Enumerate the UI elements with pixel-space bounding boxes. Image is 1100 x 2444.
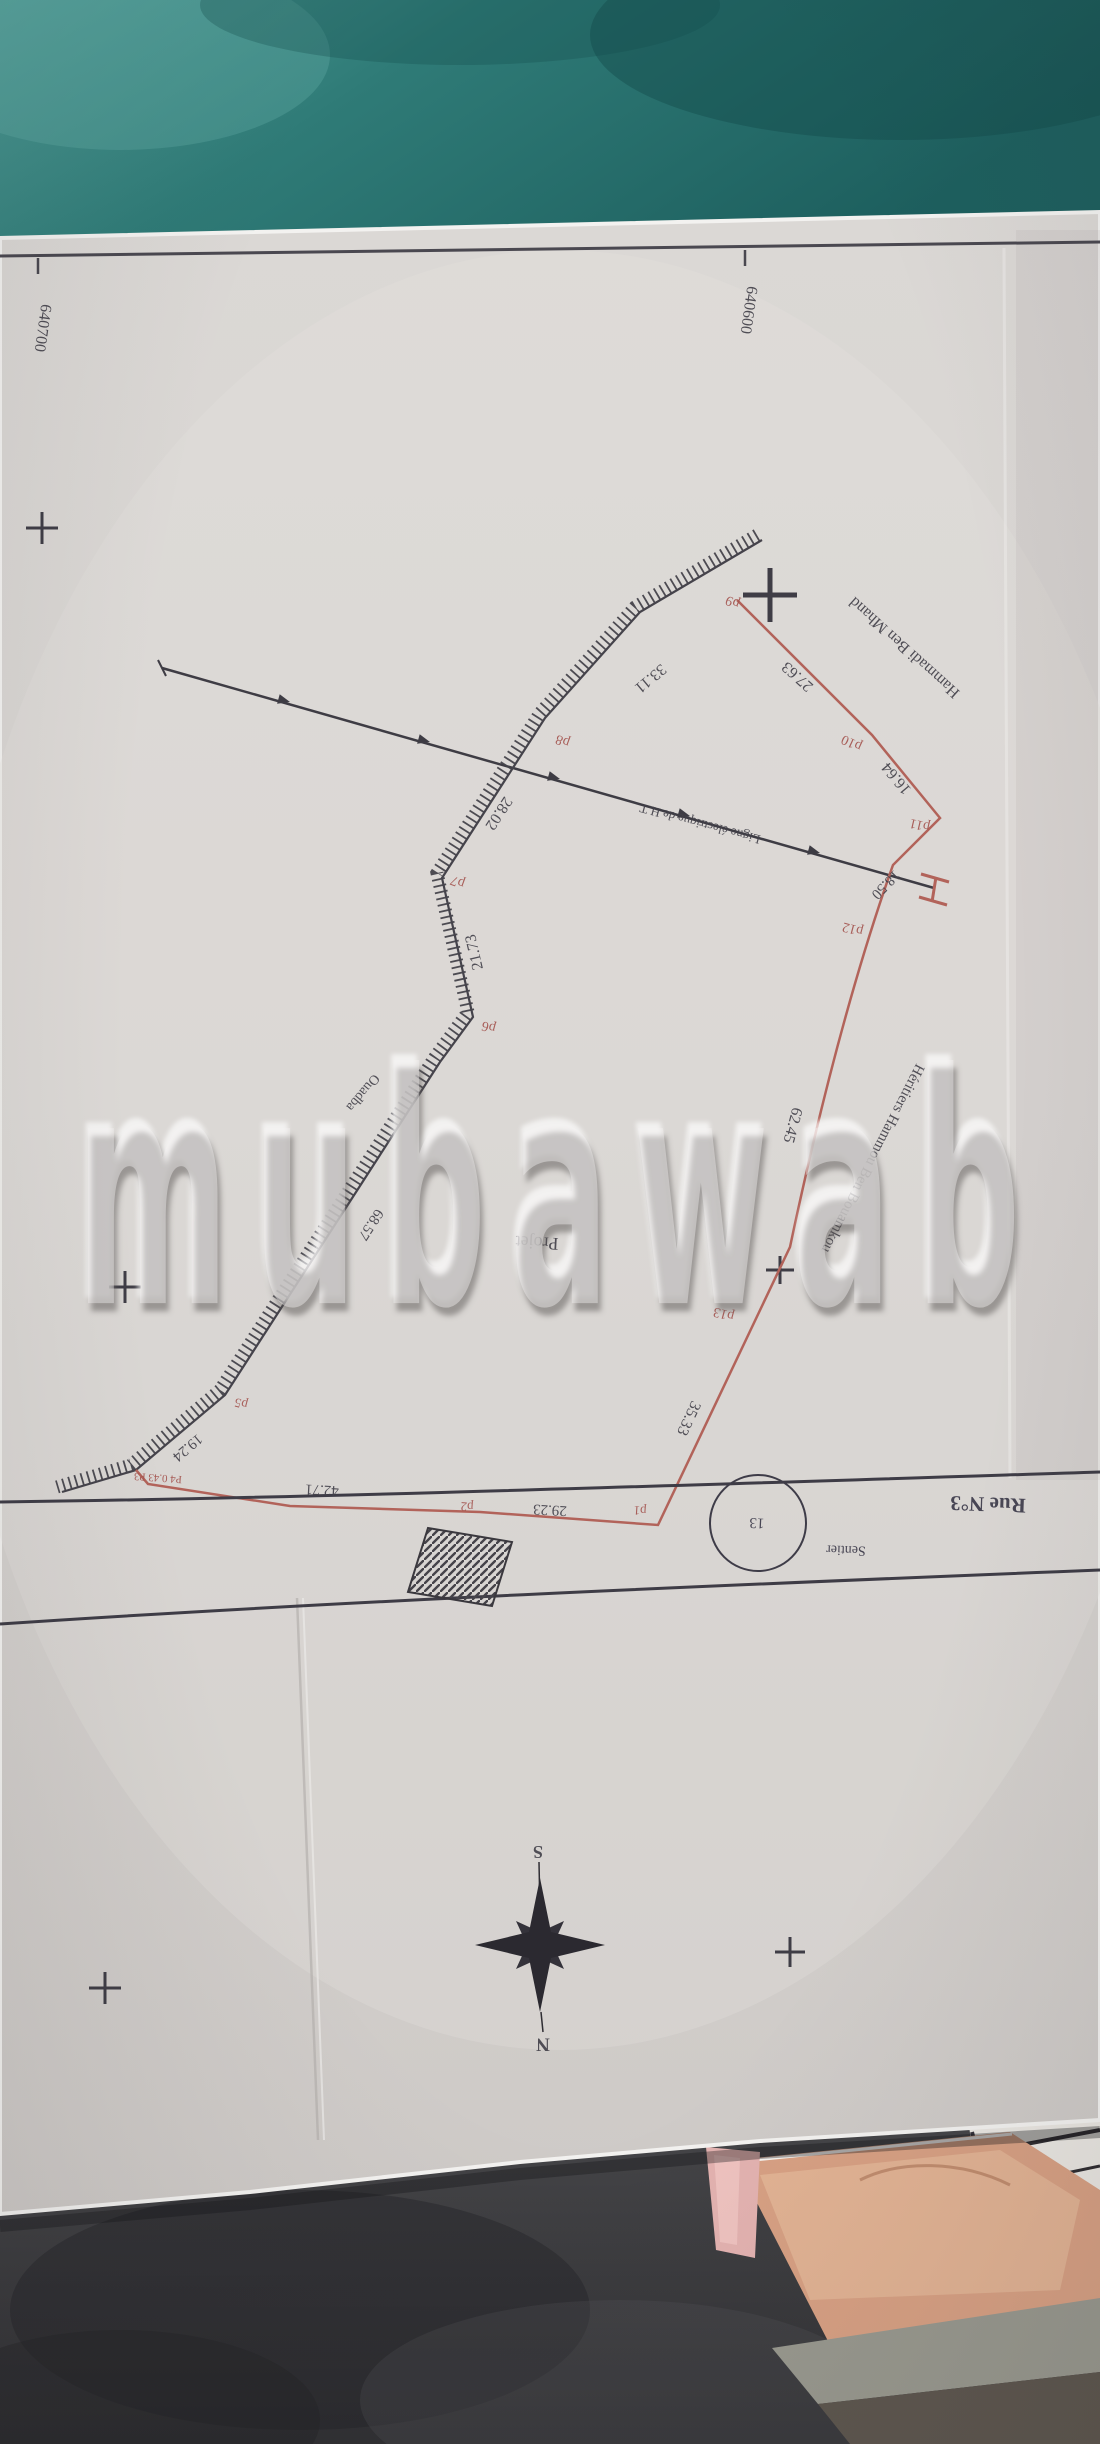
scene-graphics <box>0 0 1100 2444</box>
building <box>408 1528 512 1606</box>
photo-of-survey-plan: 640700640600Hammadi Ben Mhandp927.63p101… <box>0 0 1100 2444</box>
